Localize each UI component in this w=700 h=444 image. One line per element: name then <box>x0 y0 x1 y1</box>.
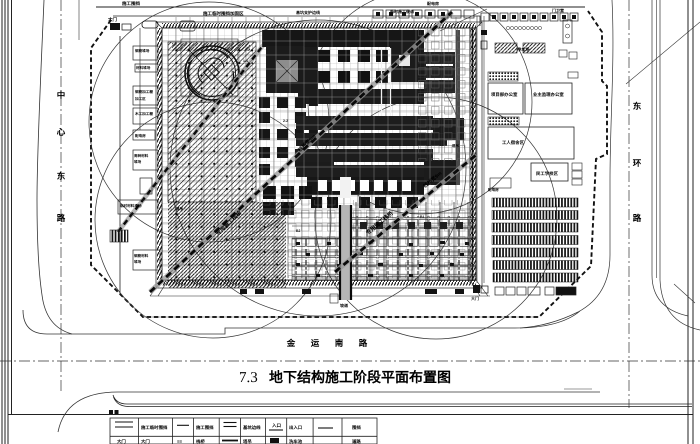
svg-text:临时材料堆场: 临时材料堆场 <box>120 203 142 208</box>
svg-text:钢筋材料: 钢筋材料 <box>134 253 149 258</box>
svg-text:路: 路 <box>359 338 368 348</box>
svg-text:塔吊: 塔吊 <box>243 439 252 444</box>
svg-text:钢筋加工棚: 钢筋加工棚 <box>135 89 153 94</box>
svg-text:环: 环 <box>633 158 642 168</box>
svg-text:配电房: 配电房 <box>135 133 146 138</box>
svg-text:1-1: 1-1 <box>243 59 248 63</box>
svg-text:基坑支护边线: 基坑支护边线 <box>295 10 320 15</box>
svg-text:项目部办公室: 项目部办公室 <box>491 92 518 97</box>
svg-text:木工加工棚: 木工加工棚 <box>134 111 153 116</box>
svg-text:加工区: 加工区 <box>134 96 146 101</box>
svg-text:民工学校区: 民工学校区 <box>536 171 559 176</box>
svg-text:基坑边线: 基坑边线 <box>242 425 261 430</box>
svg-text:施工围挡: 施工围挡 <box>196 425 214 430</box>
svg-text:钢筋堆场: 钢筋堆场 <box>135 48 150 53</box>
svg-text:大门: 大门 <box>471 296 479 301</box>
svg-text:坡道: 坡道 <box>340 303 348 308</box>
svg-text:周转材料: 周转材料 <box>134 153 149 158</box>
svg-text:施工临时围挡加固区: 施工临时围挡加固区 <box>203 11 244 16</box>
svg-text:大门: 大门 <box>107 17 117 22</box>
svg-text:路: 路 <box>57 213 66 223</box>
svg-text:B1: B1 <box>420 215 425 219</box>
svg-text:东: 东 <box>57 171 66 181</box>
svg-text:东: 东 <box>633 101 642 111</box>
svg-text:洗车池: 洗车池 <box>289 439 303 444</box>
svg-text:路: 路 <box>633 213 642 223</box>
svg-text:堆场: 堆场 <box>134 259 142 264</box>
svg-text:塔吊: 塔吊 <box>176 206 183 211</box>
svg-text:门卫室: 门卫室 <box>552 8 564 13</box>
svg-text:南: 南 <box>335 338 344 348</box>
svg-text:金: 金 <box>286 338 296 348</box>
svg-text:大门: 大门 <box>141 439 150 444</box>
svg-text:≡≡: ≡≡ <box>177 439 183 444</box>
svg-text:业主监理办公室: 业主监理办公室 <box>533 92 564 97</box>
svg-text:入口: 入口 <box>272 423 281 428</box>
svg-text:材料堆场: 材料堆场 <box>135 65 151 70</box>
svg-text:B2: B2 <box>296 229 301 233</box>
svg-text:配电房: 配电房 <box>427 1 439 6</box>
svg-text:工人宿舍区: 工人宿舍区 <box>502 140 525 145</box>
svg-text:道路: 道路 <box>352 439 361 444</box>
svg-text:围挡: 围挡 <box>352 425 361 430</box>
svg-text:配电房: 配电房 <box>488 187 499 192</box>
svg-text:塔吊: 塔吊 <box>452 143 460 148</box>
svg-text:运: 运 <box>311 338 320 348</box>
svg-text:栈桥: 栈桥 <box>196 439 205 444</box>
svg-text:施工围挡: 施工围挡 <box>122 1 140 6</box>
svg-text:中: 中 <box>57 90 66 100</box>
svg-text:出入口: 出入口 <box>289 425 302 430</box>
svg-text:堆场: 堆场 <box>134 159 142 164</box>
svg-text:地下结构施工阶段平面布置图: 地下结构施工阶段平面布置图 <box>269 369 451 385</box>
svg-text:大门: 大门 <box>117 439 126 444</box>
svg-text:心: 心 <box>57 127 66 137</box>
svg-text:停车场: 停车场 <box>517 47 530 52</box>
svg-text:施工临时围挡: 施工临时围挡 <box>141 425 168 430</box>
svg-text:7.3: 7.3 <box>239 370 258 386</box>
svg-text:2-2: 2-2 <box>283 119 288 123</box>
